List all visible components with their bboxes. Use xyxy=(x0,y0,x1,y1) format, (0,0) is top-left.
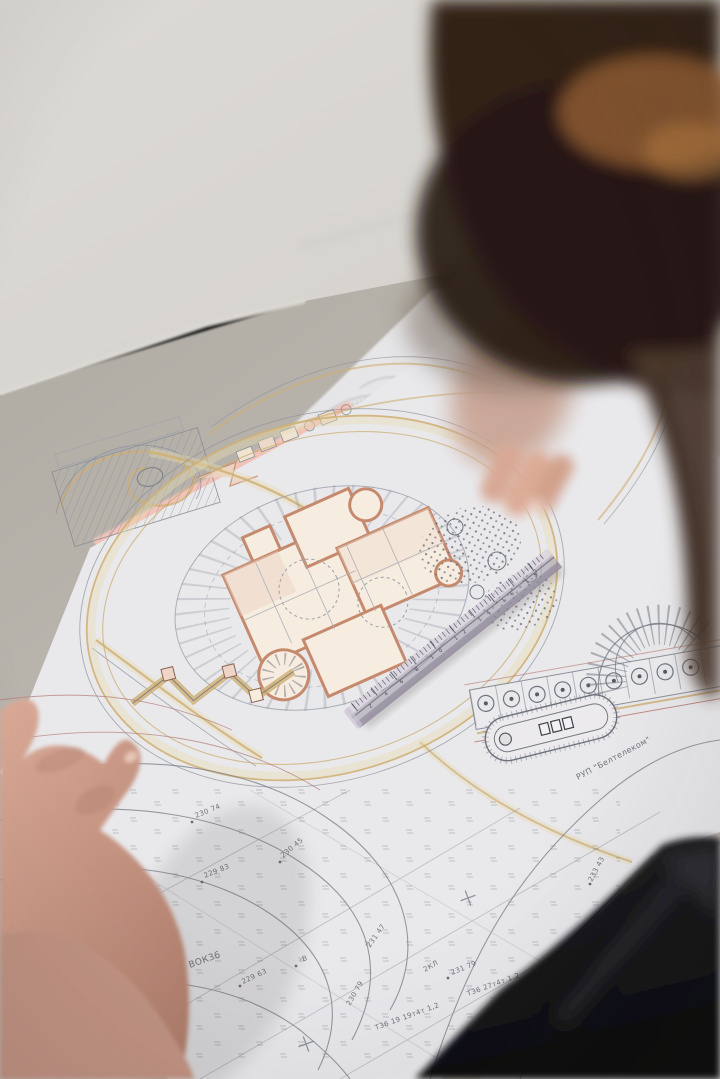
vignette-overlay xyxy=(0,0,720,1079)
scene-canvas: 230 74 230 25 229 83 230 45 231 47 230 7… xyxy=(0,0,720,1079)
photo-scene: 230 74 230 25 229 83 230 45 231 47 230 7… xyxy=(0,0,720,1079)
